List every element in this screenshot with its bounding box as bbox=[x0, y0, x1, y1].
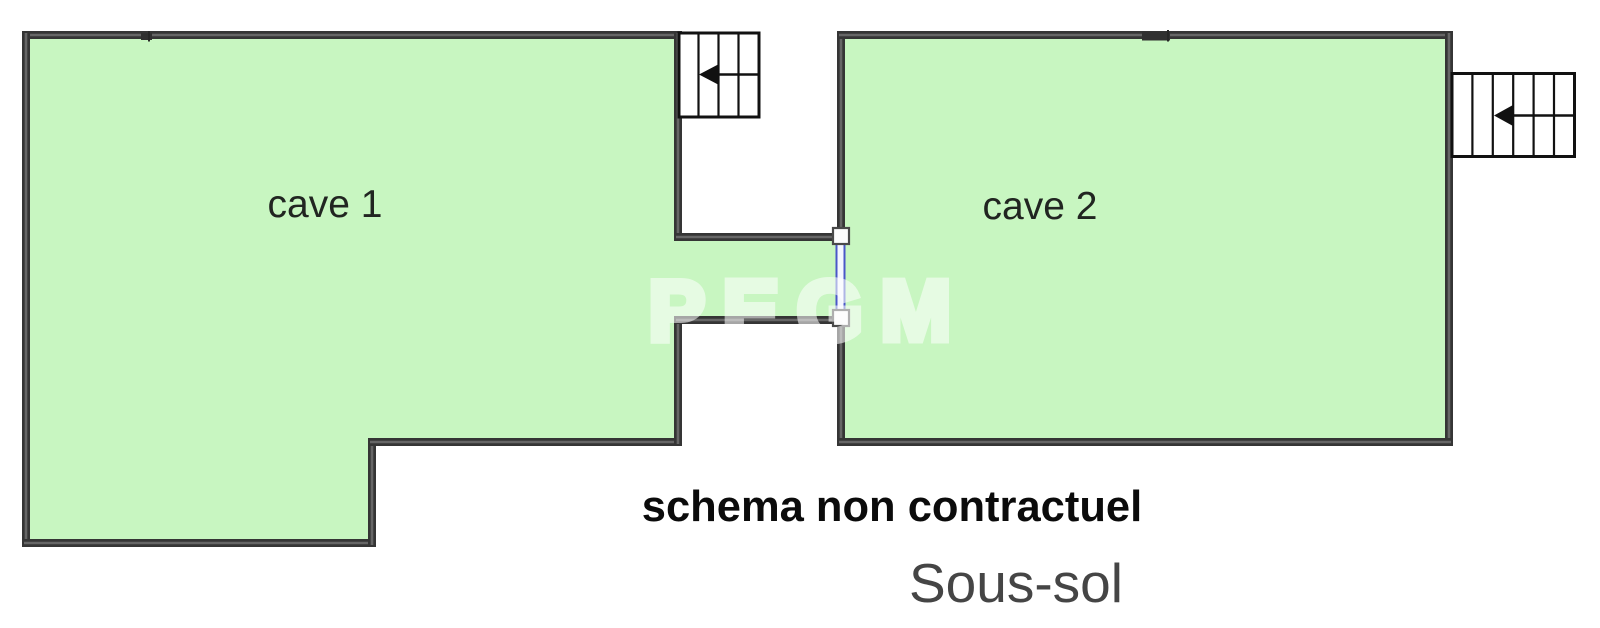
svg-text:cave 1: cave 1 bbox=[268, 183, 383, 226]
svg-text:Sous-sol: Sous-sol bbox=[909, 552, 1123, 614]
svg-text:schema non contractuel: schema non contractuel bbox=[642, 483, 1142, 531]
svg-text:cave 2: cave 2 bbox=[983, 185, 1098, 228]
svg-text:PEGM: PEGM bbox=[648, 264, 968, 359]
